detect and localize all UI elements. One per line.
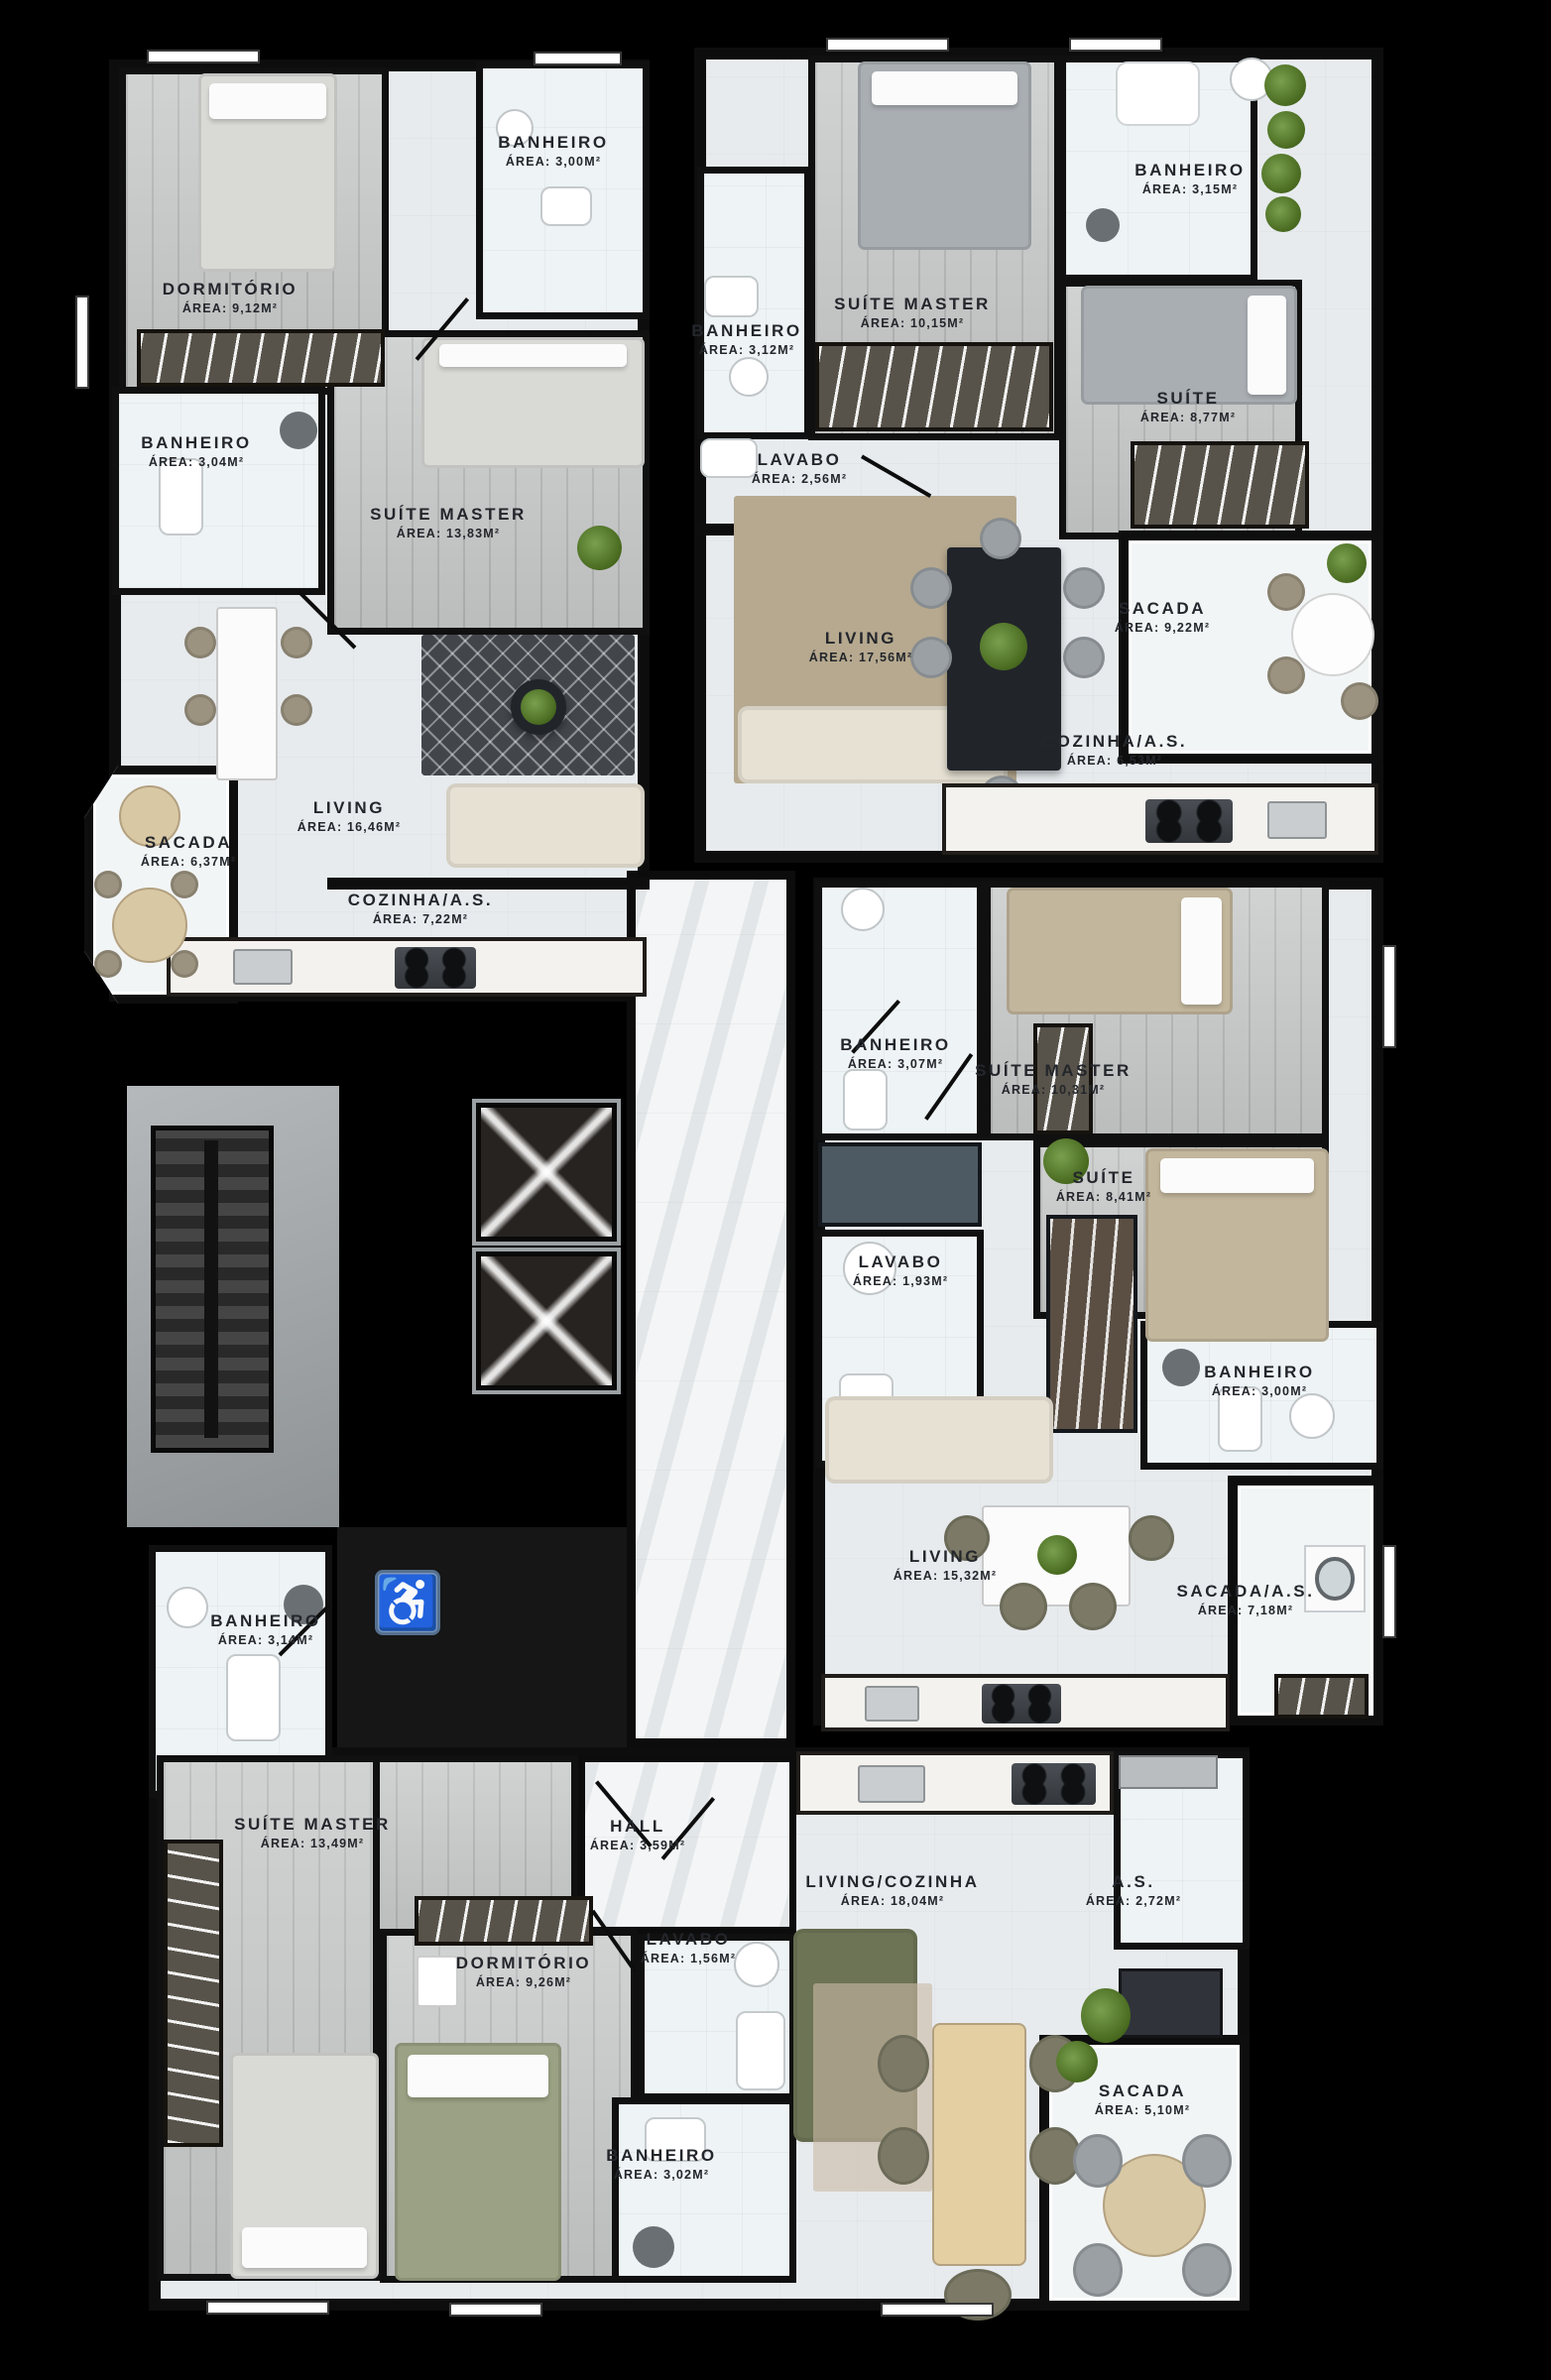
balcony-table (1291, 593, 1374, 676)
cooktop (395, 947, 476, 989)
chair (910, 637, 952, 678)
bed (858, 61, 1031, 250)
wall (327, 878, 650, 890)
dining-table (216, 607, 278, 780)
chair (171, 871, 198, 898)
room-label: SacadaÁrea: 6,37m² (141, 833, 236, 869)
plant (1037, 1535, 1077, 1575)
room-label: LavaboÁrea: 1,93m² (853, 1252, 948, 1288)
floor-plan: ♿ (0, 0, 1551, 2380)
chair (878, 2127, 929, 2185)
room-label: Cozinha/A.S.Área: 6,53m² (1042, 732, 1187, 768)
wardrobe (1131, 441, 1309, 529)
chair (1341, 682, 1378, 720)
chair (1063, 637, 1105, 678)
plant (1261, 154, 1301, 193)
bathtub (1116, 61, 1200, 126)
room-label: BanheiroÁrea: 3,02m² (606, 2146, 716, 2182)
chair (1182, 2134, 1232, 2188)
bed (1081, 286, 1297, 405)
room-label: LivingÁrea: 17,56m² (809, 629, 913, 664)
plant (980, 623, 1027, 670)
room-label: BanheiroÁrea: 3,00m² (498, 133, 608, 169)
chair (94, 950, 122, 978)
lobby-dark-floor (337, 1527, 627, 1750)
window (77, 297, 87, 387)
room-label: BanheiroÁrea: 3,07m² (840, 1035, 950, 1071)
cooktop (1012, 1763, 1096, 1805)
toilet (159, 458, 203, 535)
chair (980, 518, 1021, 559)
room-label: LavaboÁrea: 2,56m² (752, 450, 847, 486)
toilet (843, 1069, 888, 1130)
kitchen-sink (865, 1686, 919, 1722)
chair (1267, 656, 1305, 694)
kitchen-sink (233, 949, 293, 985)
corridor-floor (627, 871, 795, 1747)
cooktop (1145, 799, 1233, 843)
chair (1000, 1583, 1047, 1630)
chair (184, 627, 216, 658)
chair (1267, 573, 1305, 611)
chair (1073, 2134, 1123, 2188)
chair (1069, 1583, 1117, 1630)
toilet (540, 186, 592, 226)
closet (818, 1142, 982, 1227)
shower-head-icon (1086, 208, 1120, 242)
window (1384, 947, 1394, 1046)
plant (1056, 2041, 1098, 2082)
window (883, 2305, 992, 2315)
wardrobe (137, 329, 385, 387)
cooktop (982, 1684, 1061, 1724)
window (149, 52, 258, 61)
shower-head-icon (1162, 1349, 1200, 1386)
room-label: Sacada/A.S.Área: 7,18m² (1176, 1582, 1314, 1617)
wardrobe (1046, 1215, 1137, 1433)
bed (1007, 888, 1233, 1014)
chair (171, 950, 198, 978)
plant (577, 526, 622, 570)
room-label: Cozinha/A.S.Área: 7,22m² (348, 891, 493, 926)
toilet (700, 438, 758, 478)
sofa (446, 783, 645, 868)
stair-rail (204, 1140, 218, 1438)
room-label: BanheiroÁrea: 3,14m² (210, 1611, 320, 1647)
room-label: Suíte MasterÁrea: 10,15m² (834, 295, 991, 330)
window (1071, 40, 1160, 50)
sink (167, 1587, 208, 1628)
plant (521, 689, 556, 725)
room-label: SacadaÁrea: 9,22m² (1115, 599, 1210, 635)
window (451, 2305, 540, 2315)
room-label: HallÁrea: 3,59m² (590, 1817, 685, 1852)
room-label: Suíte MasterÁrea: 13,49m² (234, 1815, 391, 1850)
elevator (476, 1251, 617, 1390)
window (208, 2303, 327, 2313)
plant (1264, 64, 1306, 106)
plant (1265, 196, 1301, 232)
bed (198, 73, 337, 272)
plant (1267, 111, 1305, 149)
chair (281, 627, 312, 658)
toilet (736, 2011, 785, 2090)
room-label: LavaboÁrea: 1,56m² (641, 1930, 736, 1965)
service-shelf (1119, 1968, 1223, 2038)
window (1384, 1547, 1394, 1636)
room-label: A.S.Área: 2,72m² (1086, 1872, 1181, 1908)
chair (281, 694, 312, 726)
unit-middle-right-bathroom1-floor (815, 881, 984, 1140)
chair (1063, 567, 1105, 609)
room-label: LivingÁrea: 16,46m² (298, 798, 402, 834)
sink (841, 888, 885, 931)
ac-condenser (1274, 1674, 1369, 1719)
chair (1073, 2243, 1123, 2297)
wardrobe (815, 342, 1053, 431)
room-label: DormitórioÁrea: 9,26m² (456, 1954, 592, 1989)
sink (729, 357, 769, 397)
accessibility-sign: ♿ (375, 1570, 440, 1635)
room-label: Suíte MasterÁrea: 13,83m² (370, 505, 527, 540)
room-label: BanheiroÁrea: 3,15m² (1134, 161, 1245, 196)
kitchen-sink (858, 1765, 925, 1803)
wheelchair-icon: ♿ (376, 1573, 440, 1633)
kitchen-sink (1267, 801, 1327, 839)
service-cabinet (1119, 1755, 1218, 1789)
dining-table (932, 2023, 1026, 2266)
room-label: LivingÁrea: 15,32m² (894, 1547, 998, 1583)
bed (230, 2053, 379, 2279)
chair (1182, 2243, 1232, 2297)
sink (1289, 1393, 1335, 1439)
room-label: BanheiroÁrea: 3,04m² (141, 433, 251, 469)
sofa (825, 1396, 1053, 1484)
room-label: SacadaÁrea: 5,10m² (1095, 2082, 1190, 2117)
bed (1145, 1148, 1329, 1342)
toilet (226, 1654, 281, 1741)
chair (910, 567, 952, 609)
wardrobe (415, 1896, 593, 1946)
wardrobe (164, 1840, 223, 2147)
room-label: Living/CozinhaÁrea: 18,04m² (805, 1872, 979, 1908)
sink (734, 1942, 779, 1987)
tv-frame (417, 1956, 458, 2007)
toilet (704, 276, 759, 317)
bed (395, 2043, 561, 2281)
room-label: SuíteÁrea: 8,41m² (1056, 1168, 1151, 1204)
room-label: BanheiroÁrea: 3,00m² (1204, 1363, 1314, 1398)
bed (421, 337, 645, 468)
chair (1129, 1515, 1174, 1561)
room-label: DormitórioÁrea: 9,12m² (163, 280, 298, 315)
shower-head-icon (280, 412, 317, 449)
chair (94, 871, 122, 898)
window (828, 40, 947, 50)
elevator (476, 1103, 617, 1242)
chair (878, 2035, 929, 2092)
window (536, 54, 620, 63)
plant (1327, 543, 1367, 583)
chair (184, 694, 216, 726)
plant (1081, 1988, 1131, 2043)
room-label: SuíteÁrea: 8,77m² (1140, 389, 1236, 424)
shower-head-icon (633, 2226, 674, 2268)
room-label: Suíte MasterÁrea: 10,31m² (975, 1061, 1132, 1097)
room-label: BanheiroÁrea: 3,12m² (691, 321, 801, 357)
